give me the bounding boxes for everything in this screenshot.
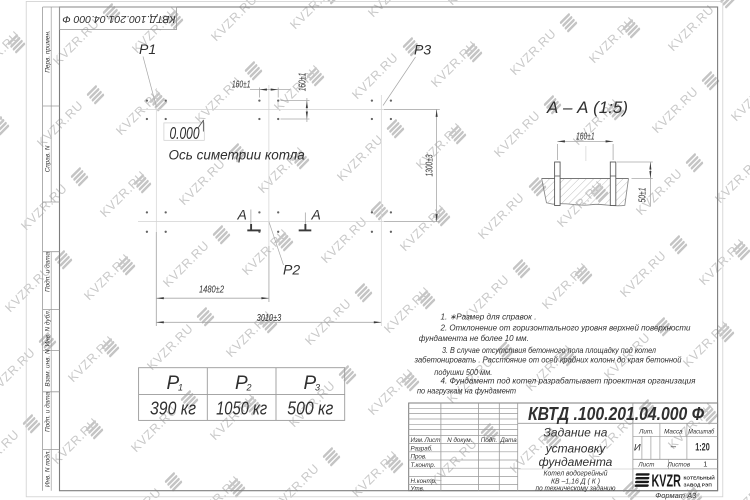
svg-text:И: И (634, 442, 641, 453)
svg-text:Утв.: Утв. (410, 485, 425, 492)
svg-text:Р2: Р2 (283, 262, 300, 278)
svg-text:А – А (1:5): А – А (1:5) (546, 99, 628, 117)
svg-text:Масса: Масса (664, 428, 683, 435)
svg-text:установку: установку (545, 441, 607, 455)
svg-text:Масштаб: Масштаб (688, 428, 714, 435)
svg-text:А: А (237, 207, 247, 223)
svg-text:Справ. N: Справ. N (45, 145, 52, 172)
svg-text:390 кг: 390 кг (150, 398, 196, 418)
svg-text:А: А (311, 207, 321, 223)
svg-text:3010±3: 3010±3 (257, 313, 282, 324)
svg-text:1: 1 (703, 460, 707, 469)
svg-text:160±1: 160±1 (576, 131, 595, 142)
svg-text:Р3: Р3 (414, 42, 431, 58)
svg-text:–: – (670, 441, 677, 452)
svg-text:Подп. и дата: Подп. и дата (44, 252, 52, 292)
svg-text:KVZR: KVZR (652, 472, 682, 491)
svg-text:50±1: 50±1 (637, 188, 648, 203)
svg-text:Инв. N дубл.: Инв. N дубл. (44, 310, 52, 347)
svg-text:160±1: 160±1 (298, 73, 309, 92)
svg-text:1: 1 (178, 383, 183, 393)
svg-text:0.000: 0.000 (170, 123, 200, 143)
svg-text:2. Отклонение от горизонтальн: 2. Отклонение от горизонтального уровня … (440, 324, 691, 333)
svg-text:забетонировать . Расстояние о: забетонировать . Расстояние от осей край… (414, 355, 682, 364)
svg-text:КВТД.100.201.04.000 Ф: КВТД.100.201.04.000 Ф (62, 13, 175, 25)
svg-text:Подп.: Подп. (481, 437, 497, 444)
svg-text:Подп. и дата: Подп. и дата (44, 392, 52, 432)
svg-text:Лит.: Лит. (638, 428, 654, 435)
svg-text:3. В случае отсутствия бетонн: 3. В случае отсутствия бетонного пола пл… (442, 346, 656, 355)
svg-text:ЗАВОД РЭП: ЗАВОД РЭП (684, 482, 713, 488)
svg-text:Пров.: Пров. (411, 454, 427, 461)
svg-text:Ось симетрии котла: Ось симетрии котла (169, 147, 306, 162)
svg-text:Перв. примен.: Перв. примен. (45, 30, 52, 72)
svg-text:1480±2: 1480±2 (199, 285, 224, 296)
svg-text:по нагрузкам на фундамент: по нагрузкам на фундамент (417, 386, 516, 395)
svg-text:Дата: Дата (499, 437, 517, 444)
svg-text:N докум.: N докум. (447, 437, 472, 444)
svg-text:Р1: Р1 (139, 41, 156, 57)
svg-text:Н.контр.: Н.контр. (411, 478, 437, 485)
svg-text:фундамента: фундамента (539, 455, 613, 469)
svg-text:4. Фундамент под котел разраб: 4. Фундамент под котел разрабатывает про… (441, 376, 697, 385)
svg-text:Инв. N подл.: Инв. N подл. (44, 450, 52, 487)
svg-text:1050 кг: 1050 кг (216, 398, 267, 418)
svg-text:КВТД .100.201.04.000 Ф: КВТД .100.201.04.000 Ф (528, 404, 704, 424)
svg-text:Лист: Лист (637, 461, 654, 468)
svg-text:Изм.: Изм. (411, 437, 424, 444)
svg-text:3: 3 (315, 383, 320, 393)
svg-text:1300±3: 1300±3 (425, 154, 436, 176)
svg-text:Формат А3: Формат А3 (655, 491, 697, 500)
svg-text:Т.контр.: Т.контр. (411, 462, 436, 469)
svg-text:1:20: 1:20 (695, 442, 710, 454)
svg-text:160±1: 160±1 (232, 80, 251, 91)
svg-text:500 кг: 500 кг (287, 398, 333, 418)
svg-text:Разраб.: Разраб. (411, 445, 433, 452)
svg-text:1. ∗Размер для справок .: 1. ∗Размер для справок . (441, 312, 537, 321)
svg-text:Лист: Лист (424, 437, 441, 444)
svg-text:фундамента не более 10 мм.: фундамента не более 10 мм. (419, 334, 529, 343)
svg-text:Взам. инв. N: Взам. инв. N (45, 349, 52, 387)
svg-text:Листов: Листов (667, 461, 691, 468)
svg-text:по техническому заданию: по техническому заданию (536, 483, 616, 492)
svg-text:2: 2 (246, 383, 252, 393)
svg-text:Задание на: Задание на (544, 426, 608, 440)
